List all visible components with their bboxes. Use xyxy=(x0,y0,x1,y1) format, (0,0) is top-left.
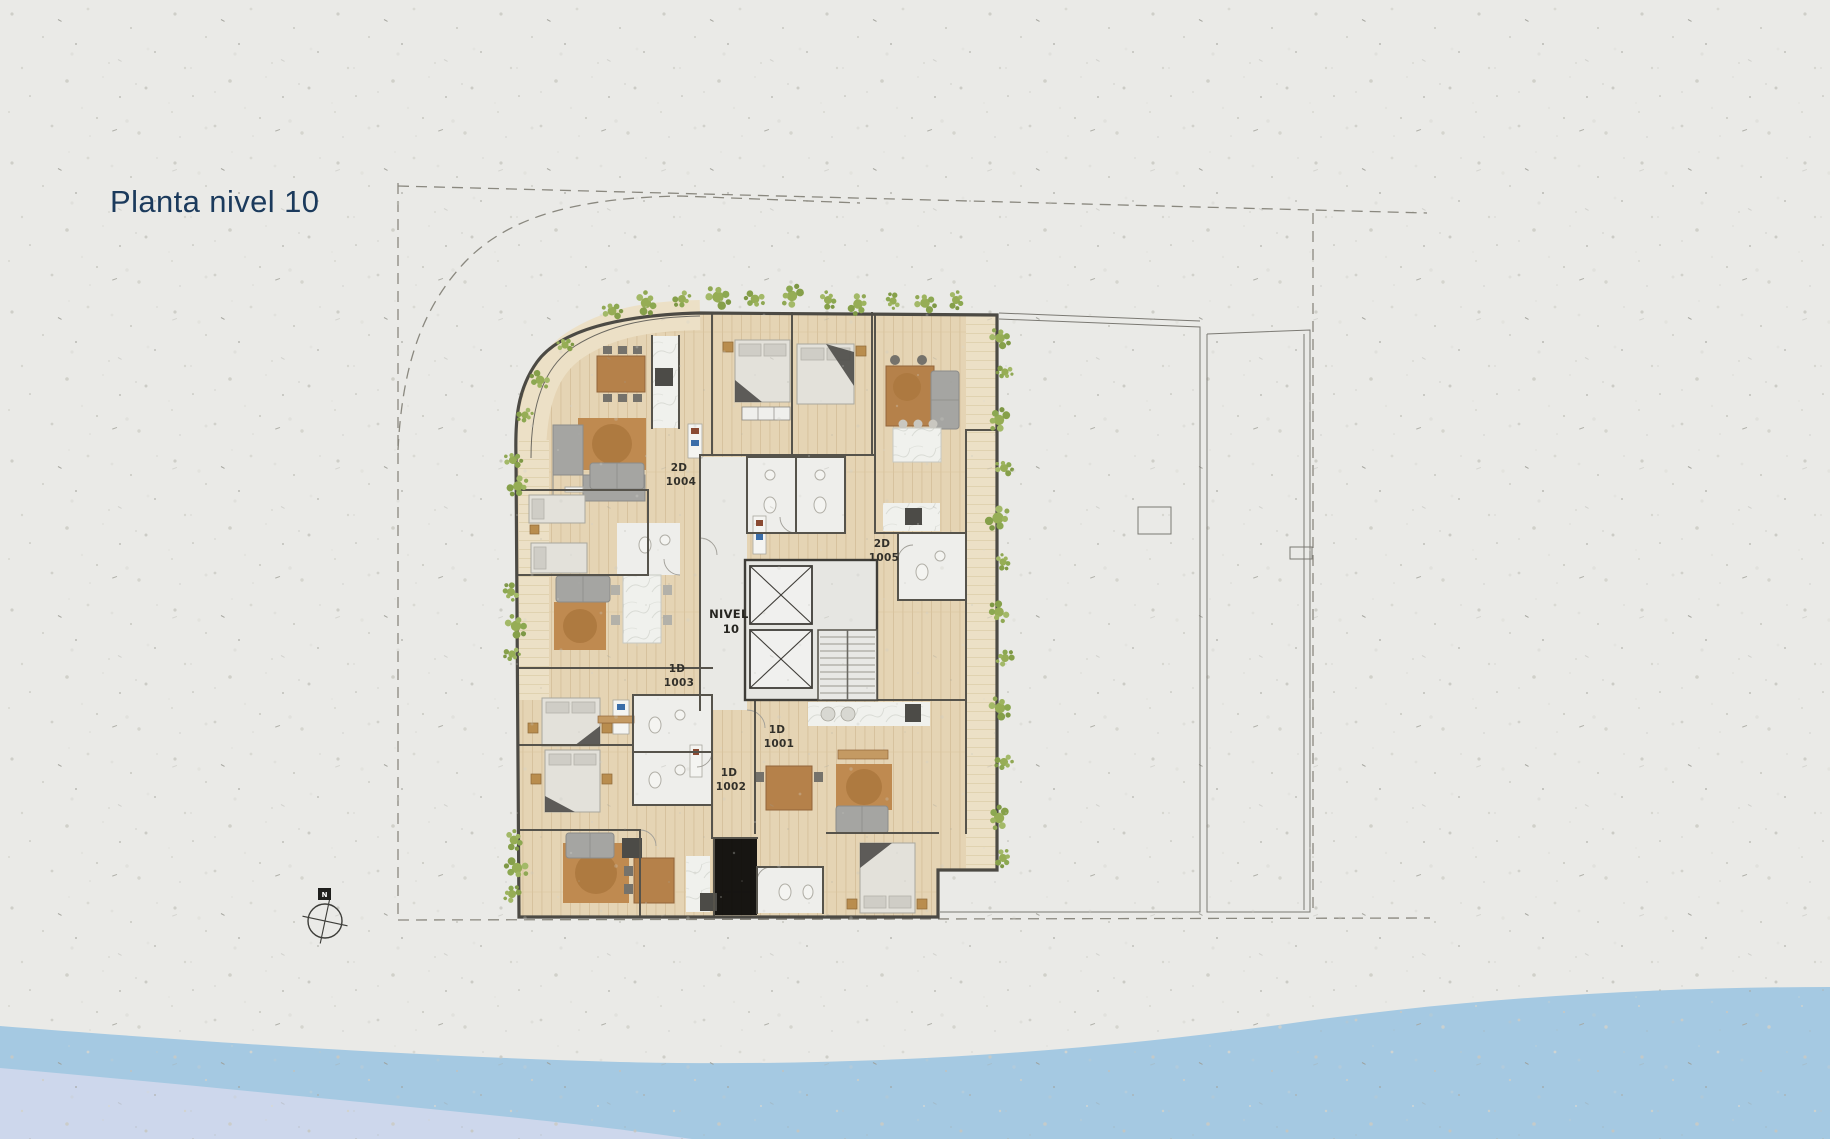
page-title: Planta nivel 10 xyxy=(110,186,319,217)
floor-plan-image: 2D 1004 2D 1005 1D 1003 1D 1001 1D 100 xyxy=(0,0,1830,1139)
paper-speckle-texture-overlay xyxy=(60,40,1830,1139)
page-canvas: 2D 1004 2D 1005 1D 1003 1D 1001 1D 100 xyxy=(0,0,1830,1139)
